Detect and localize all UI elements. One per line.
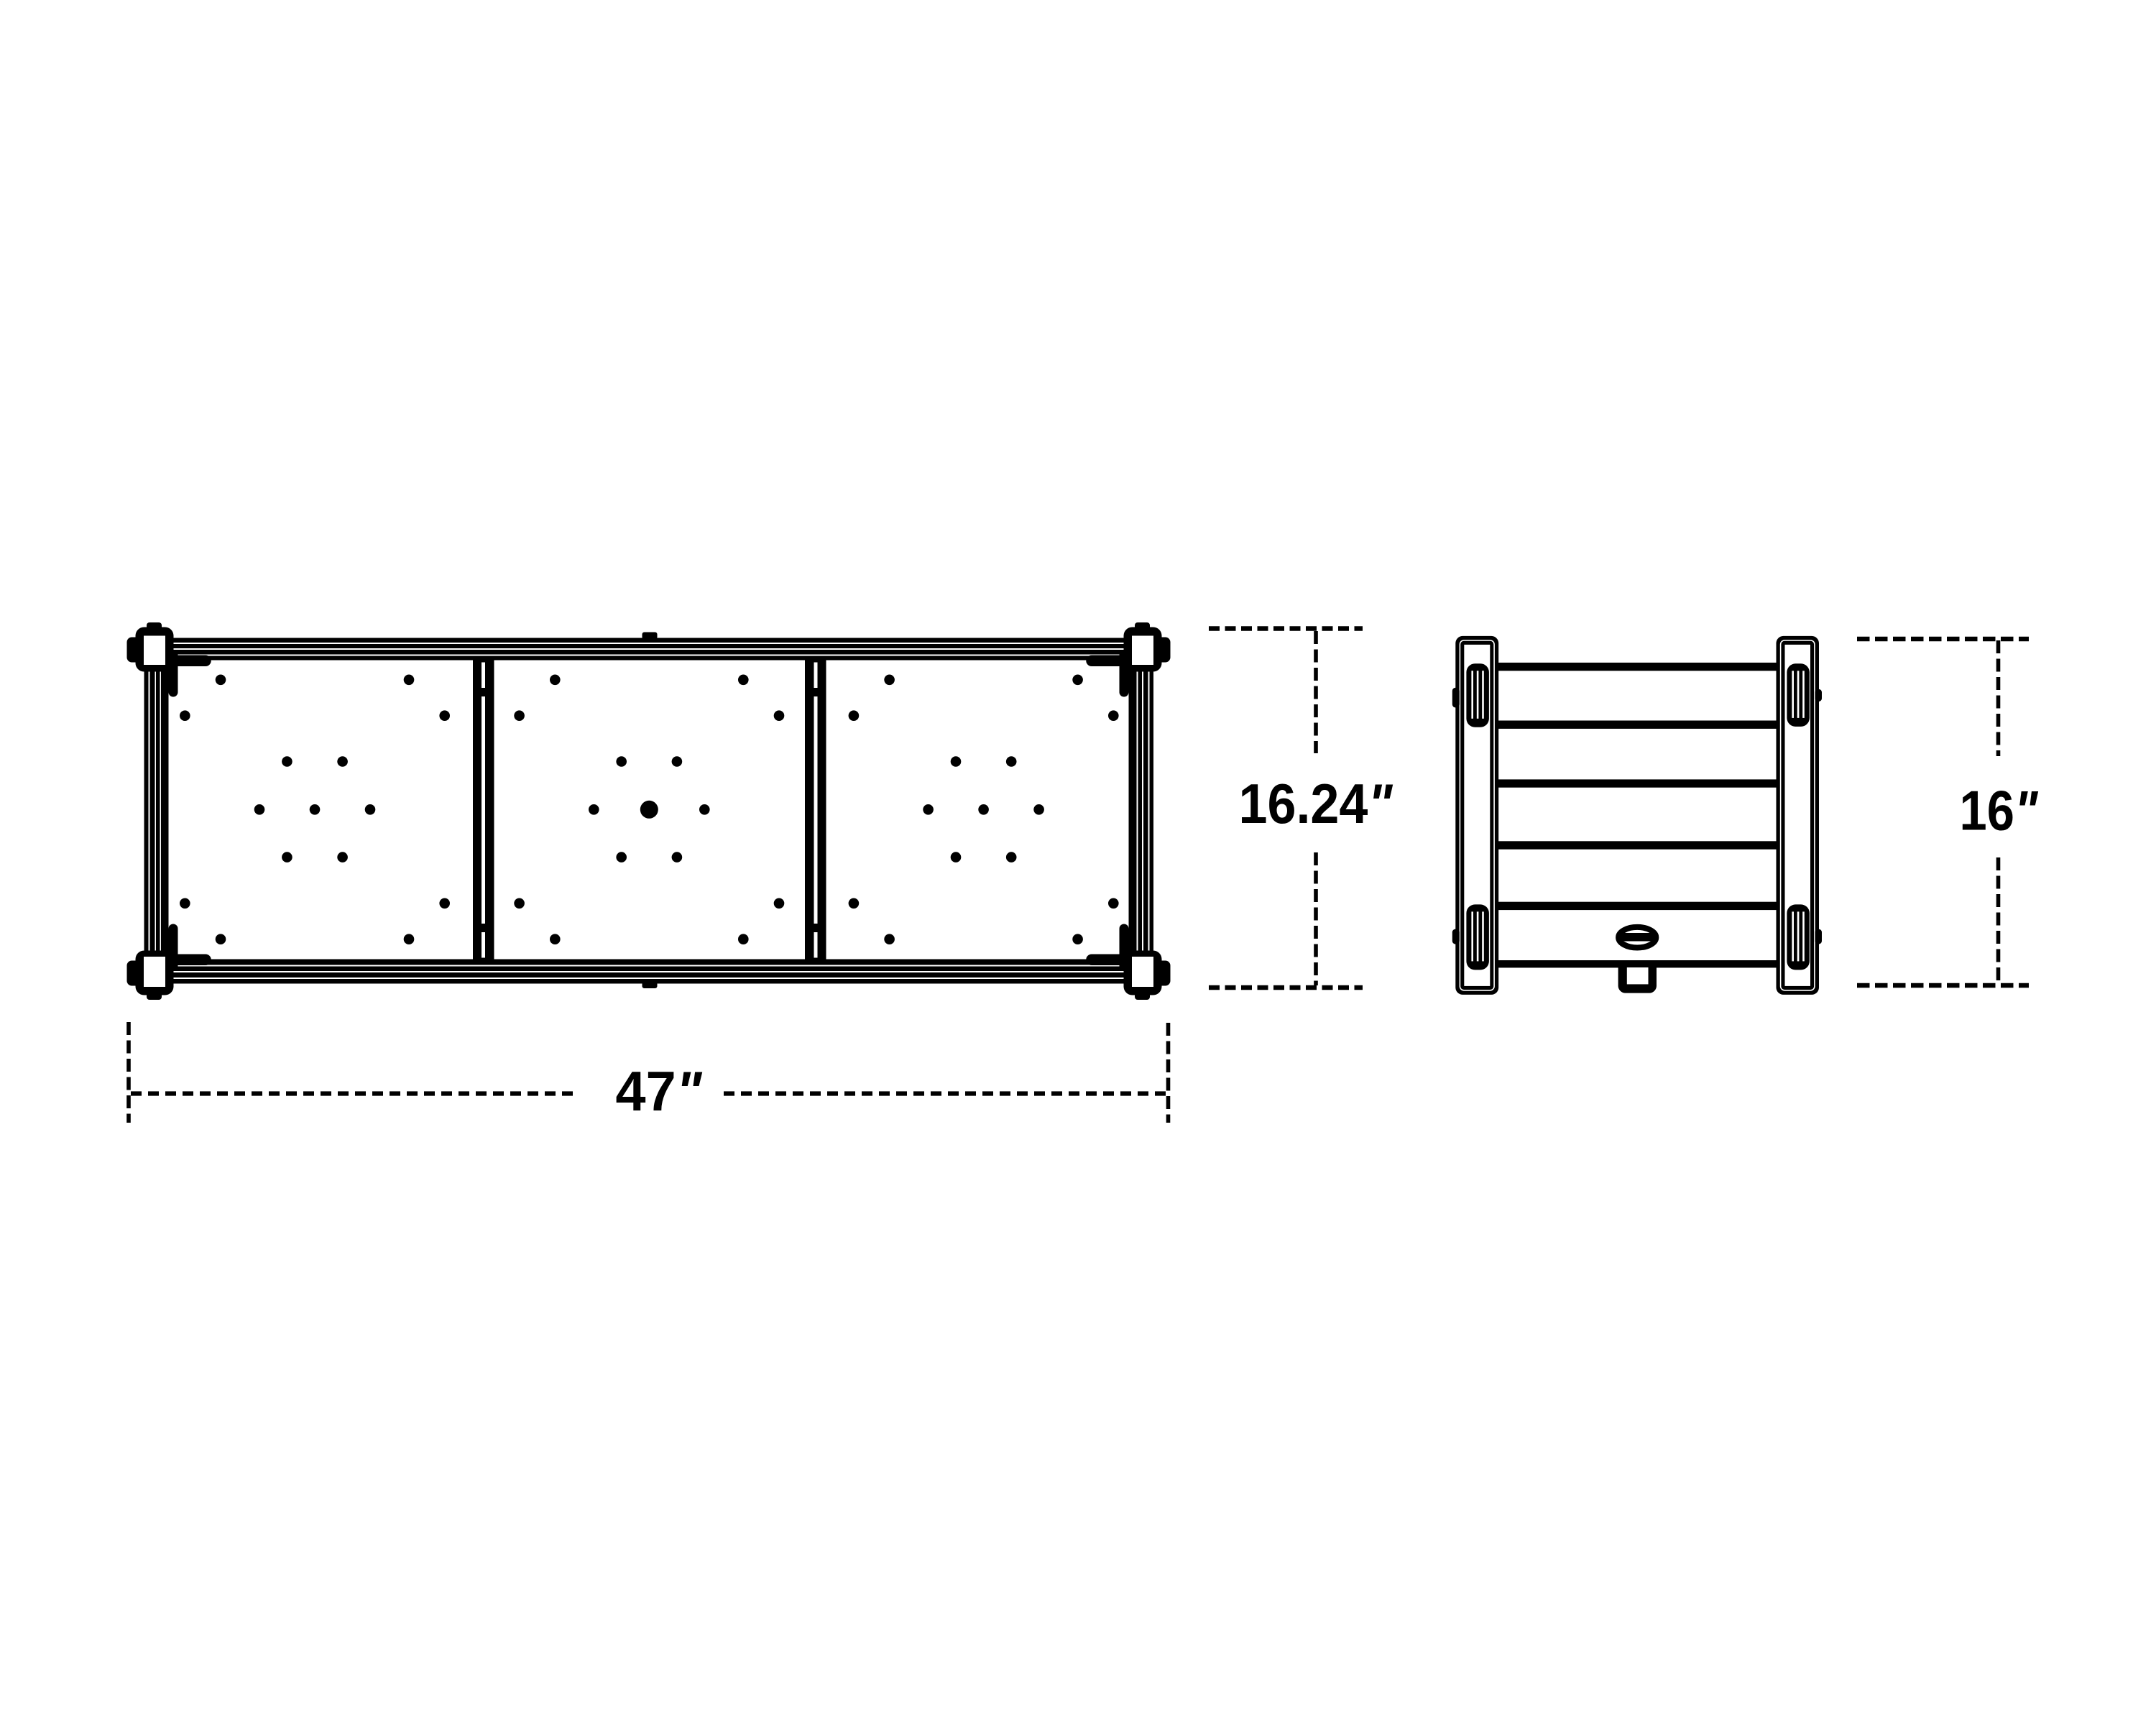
svg-text:16.24": 16.24" bbox=[1239, 772, 1393, 835]
svg-text:16": 16" bbox=[1960, 779, 2039, 842]
svg-text:47": 47" bbox=[616, 1059, 703, 1123]
